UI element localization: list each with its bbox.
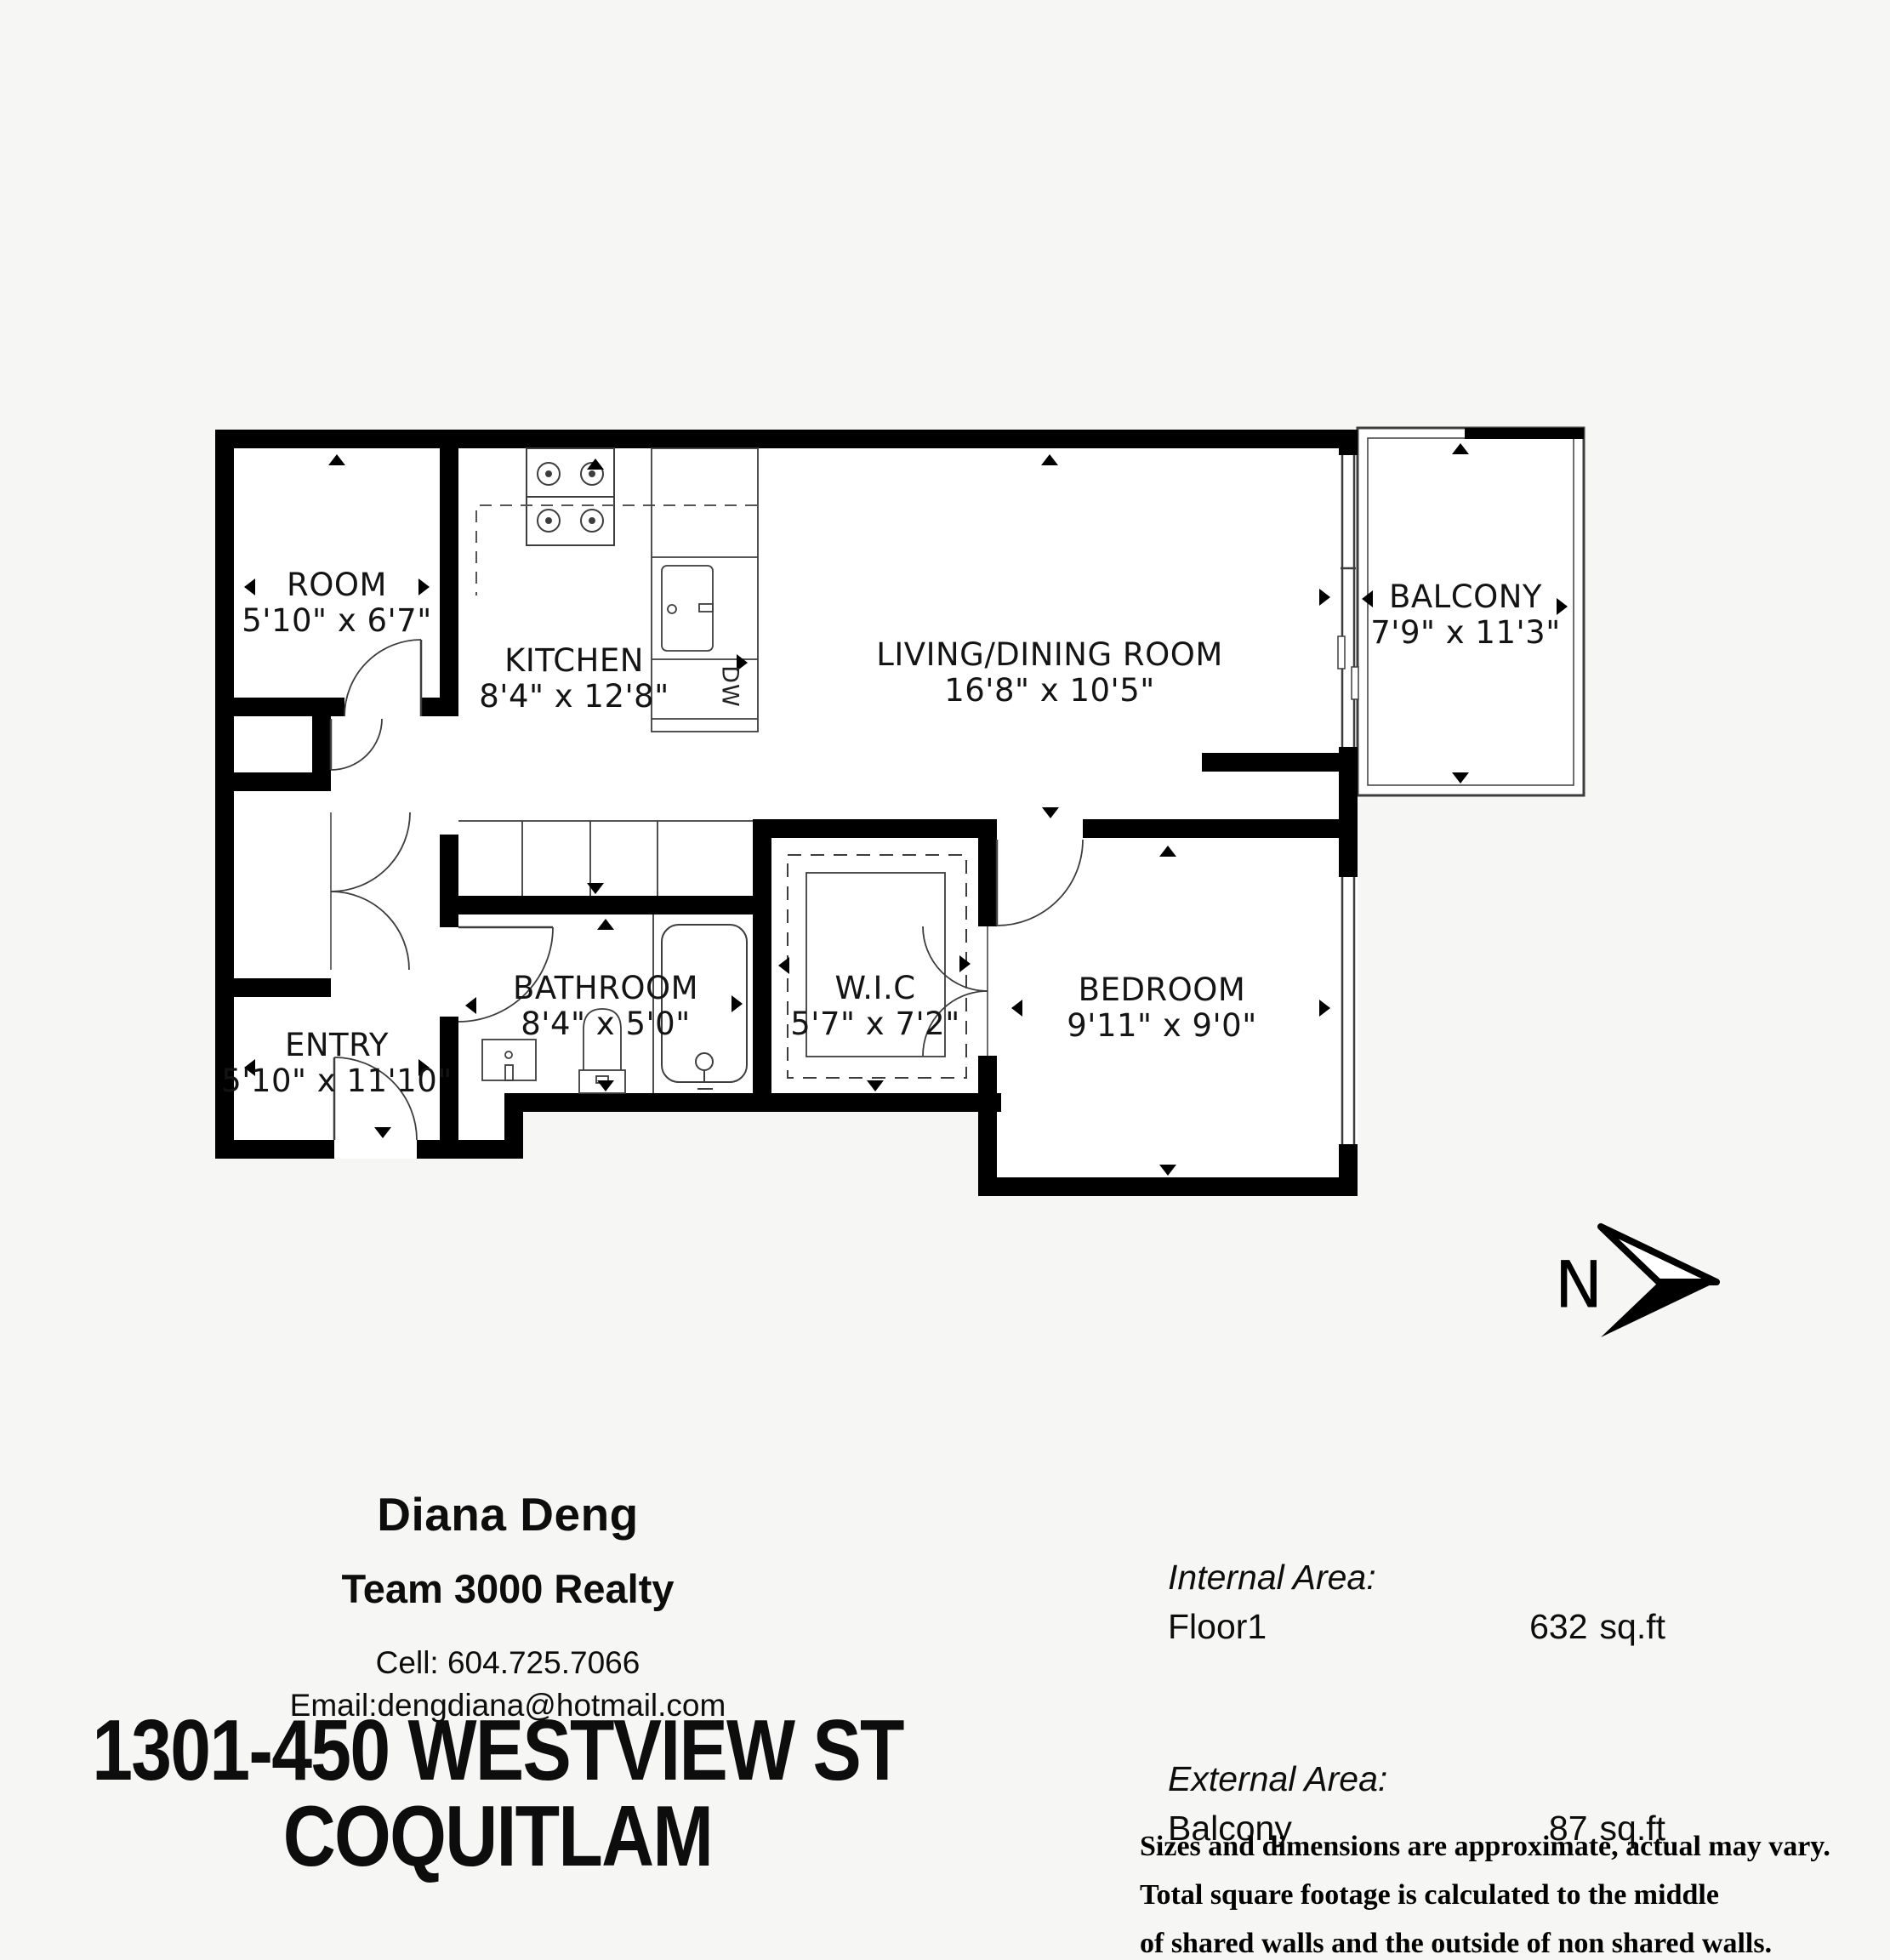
floorplan-page: ROOM 5'10" x 6'7" KITCHEN 8'4" x 12'8" L… [0,0,1890,1960]
internal-area-value: 632sq.ft [1529,1607,1665,1647]
room-name: BATHROOM [513,970,698,1006]
room-name: ENTRY [285,1027,389,1063]
external-area-title: External Area: [1168,1759,1665,1799]
room-dims: 8'4" x 5'0" [513,1006,698,1042]
room-label-kitchen: KITCHEN 8'4" x 12'8" [479,643,669,715]
room-name: BALCONY [1389,578,1542,615]
internal-area-row: Floor1 632sq.ft [1168,1607,1665,1647]
room-label-bathroom: BATHROOM 8'4" x 5'0" [513,971,698,1042]
internal-area-name: Floor1 [1168,1607,1267,1647]
room-name: W.I.C [834,970,915,1006]
disclaimer-line: Total square footage is calculated to th… [1140,1871,1830,1919]
room-label-wic: W.I.C 5'7" x 7'2" [790,971,959,1042]
disclaimer-line: of shared walls and the outside of non s… [1140,1919,1830,1960]
address-line2: COQUITLAM [75,1794,921,1880]
listing-address: 1301-450 WESTVIEW ST COQUITLAM [75,1708,921,1880]
room-label-entry: ENTRY 5'10" x 11'10" [221,1028,453,1099]
room-dims: 9'11" x 9'0" [1067,1008,1257,1044]
room-name: LIVING/DINING ROOM [876,636,1223,673]
room-label-bedroom: BEDROOM 9'11" x 9'0" [1067,972,1257,1044]
agent-name: Diana Deng [0,1487,1016,1541]
room-dims: 8'4" x 12'8" [479,679,669,715]
north-label: N [1555,1247,1603,1323]
disclaimer: Sizes and dimensions are approximate, ac… [1140,1822,1830,1960]
room-dims: 16'8" x 10'5" [876,673,1223,709]
internal-area-title: Internal Area: [1168,1558,1665,1598]
agent-cell: Cell: 604.725.7066 [0,1645,1016,1681]
room-name: ROOM [287,567,387,603]
room-dims: 5'7" x 7'2" [790,1006,959,1042]
agent-brokerage: Team 3000 Realty [0,1565,1016,1612]
dishwasher-label: DW [717,665,743,708]
room-label-living: LIVING/DINING ROOM 16'8" x 10'5" [876,637,1223,709]
room-name: BEDROOM [1079,971,1246,1008]
address-line1: 1301-450 WESTVIEW ST [75,1708,921,1794]
disclaimer-line: Sizes and dimensions are approximate, ac… [1140,1822,1830,1871]
room-dims: 5'10" x 6'7" [242,603,432,639]
room-dims: 5'10" x 11'10" [221,1063,453,1099]
room-dims: 7'9" x 11'3" [1370,615,1561,651]
room-name: KITCHEN [504,642,644,679]
room-label-room: ROOM 5'10" x 6'7" [242,567,432,639]
north-arrow-icon [1601,1227,1716,1337]
room-label-balcony: BALCONY 7'9" x 11'3" [1370,579,1561,651]
